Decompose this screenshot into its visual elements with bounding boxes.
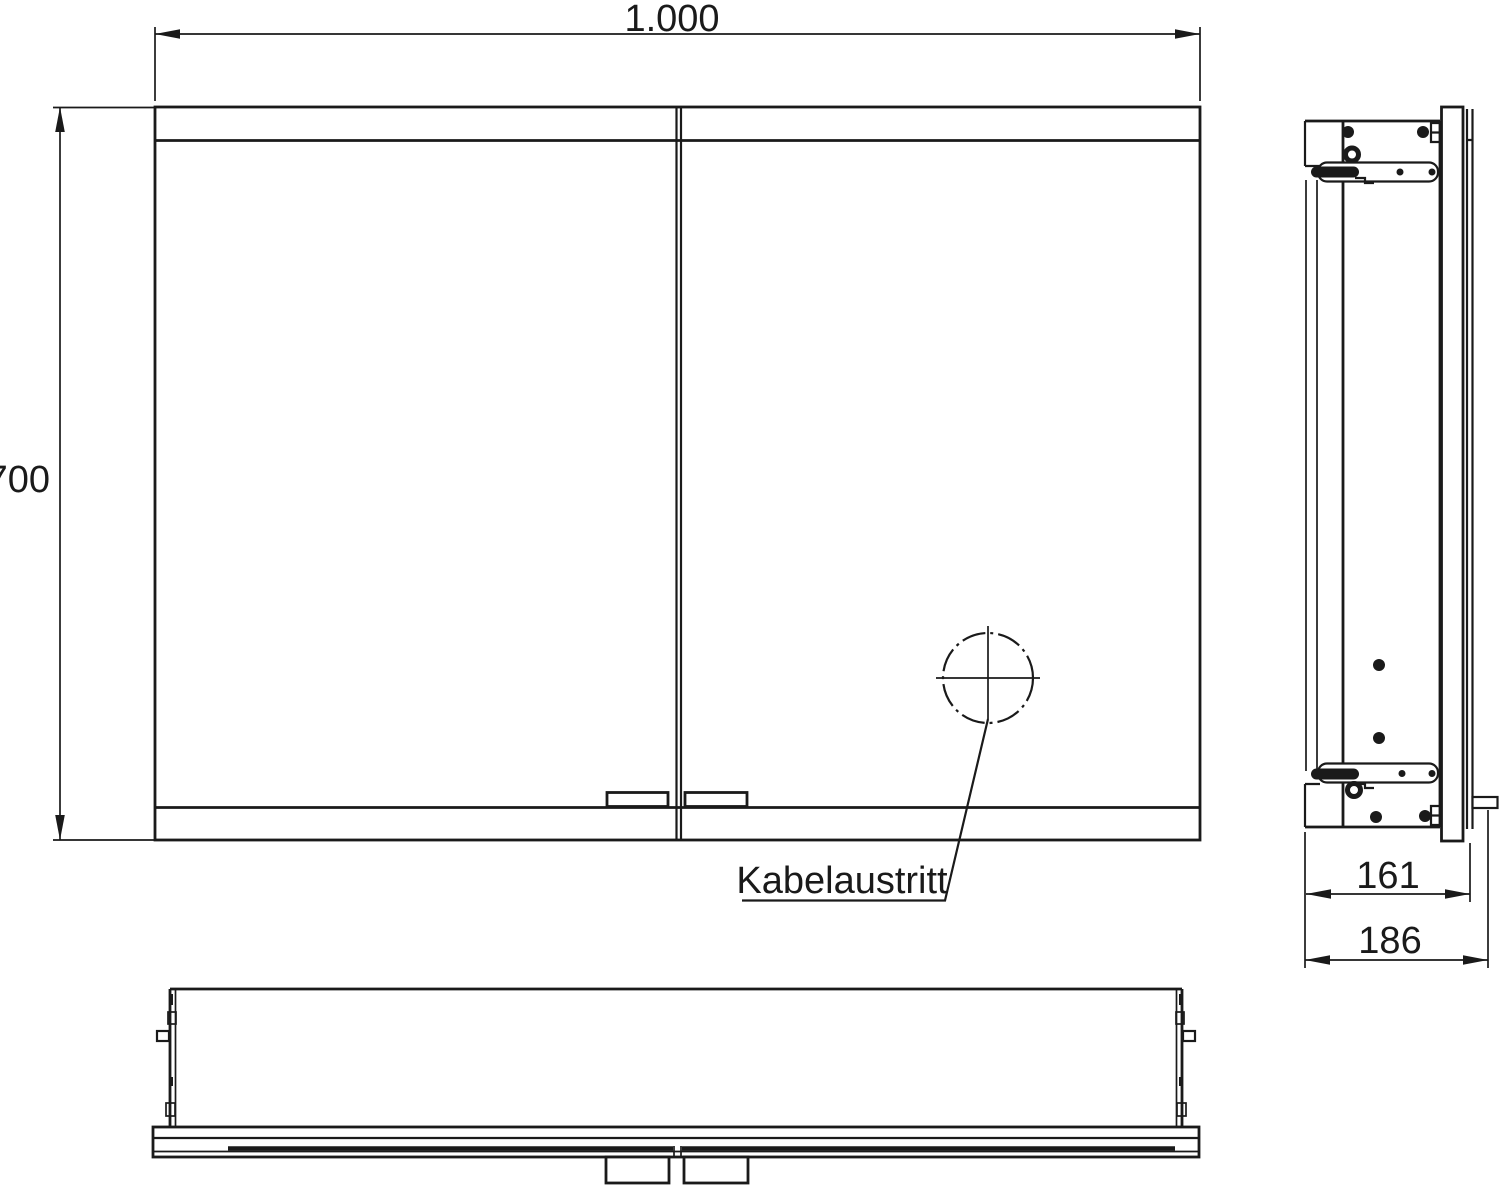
screw-bottom-right-icon	[1419, 810, 1431, 822]
arrow-right-icon	[1175, 29, 1200, 39]
hinge-mark-icon	[1179, 994, 1183, 1005]
screw-top-right-icon	[1417, 126, 1429, 138]
technical-drawing-page: 1.000 700 Kabelaustritt	[0, 0, 1500, 1185]
handle-bottom-right	[684, 1157, 748, 1183]
hinge-pin-dot	[1399, 770, 1406, 777]
hinge-pin-dot	[1429, 169, 1436, 176]
bottom-carcass-outline	[170, 989, 1182, 1127]
wall-tab-left	[157, 1031, 169, 1041]
mirror-glass-layer	[1467, 109, 1473, 829]
mirror-cabinet-drawing: 1.000 700 Kabelaustritt	[0, 0, 1500, 1185]
cable-outlet: Kabelaustritt	[736, 626, 1040, 902]
arrow-left-icon	[1306, 889, 1331, 899]
hinge-pivot-bottom	[1311, 769, 1359, 780]
arrow-right-icon	[1445, 889, 1470, 899]
hinge-pin-dot	[1397, 169, 1404, 176]
side-view: 161 186	[1305, 107, 1498, 968]
screw-bottom-left-icon	[1370, 811, 1382, 823]
bottom-door-edges	[176, 989, 1177, 1127]
width-dimension-label: 1.000	[624, 0, 719, 40]
dimension-width: 1.000	[155, 0, 1200, 101]
dimension-height-extension-lines	[53, 108, 154, 841]
arrow-left-icon	[155, 29, 180, 39]
mirror-door-strip	[153, 1127, 1199, 1157]
dimension-height: 700	[0, 107, 154, 840]
hinge-mark-icon	[1179, 1077, 1183, 1086]
mounting-hole-icon	[1373, 659, 1385, 671]
height-dimension-label: 700	[0, 459, 50, 501]
door-center-divider	[677, 107, 682, 840]
door-handle-left	[607, 793, 668, 807]
front-view: 1.000 700 Kabelaustritt	[0, 0, 1200, 902]
handle-bottom-left	[606, 1157, 669, 1183]
cable-outlet-label: Kabelaustritt	[736, 860, 948, 902]
hinge-knuckle-bottom	[1348, 784, 1361, 797]
arrow-up-icon	[55, 107, 65, 132]
depth-dimension-label: 161	[1356, 855, 1419, 897]
mounting-hole-icon	[1373, 732, 1385, 744]
door-handle-right	[685, 793, 747, 807]
arrow-left-icon	[1305, 955, 1330, 965]
overall-depth-dimension-label: 186	[1358, 920, 1421, 962]
screw-top-left-icon	[1342, 126, 1354, 138]
wall-bracket-tab	[1473, 797, 1498, 808]
wall-rail-strip	[1306, 180, 1317, 771]
hinge-mark-icon	[169, 1077, 173, 1086]
hinge-mark-icon	[169, 994, 173, 1005]
bottom-view	[153, 989, 1199, 1183]
hinge-knuckle-top	[1346, 148, 1359, 161]
hinge-pivot-top	[1311, 167, 1359, 178]
wall-tab-right	[1183, 1031, 1195, 1041]
side-carcass-outline	[1305, 121, 1440, 827]
hinge-pin-dot	[1429, 770, 1436, 777]
arrow-down-icon	[55, 815, 65, 840]
arrow-right-icon	[1463, 955, 1488, 965]
mirror-door-profile	[1442, 107, 1464, 841]
